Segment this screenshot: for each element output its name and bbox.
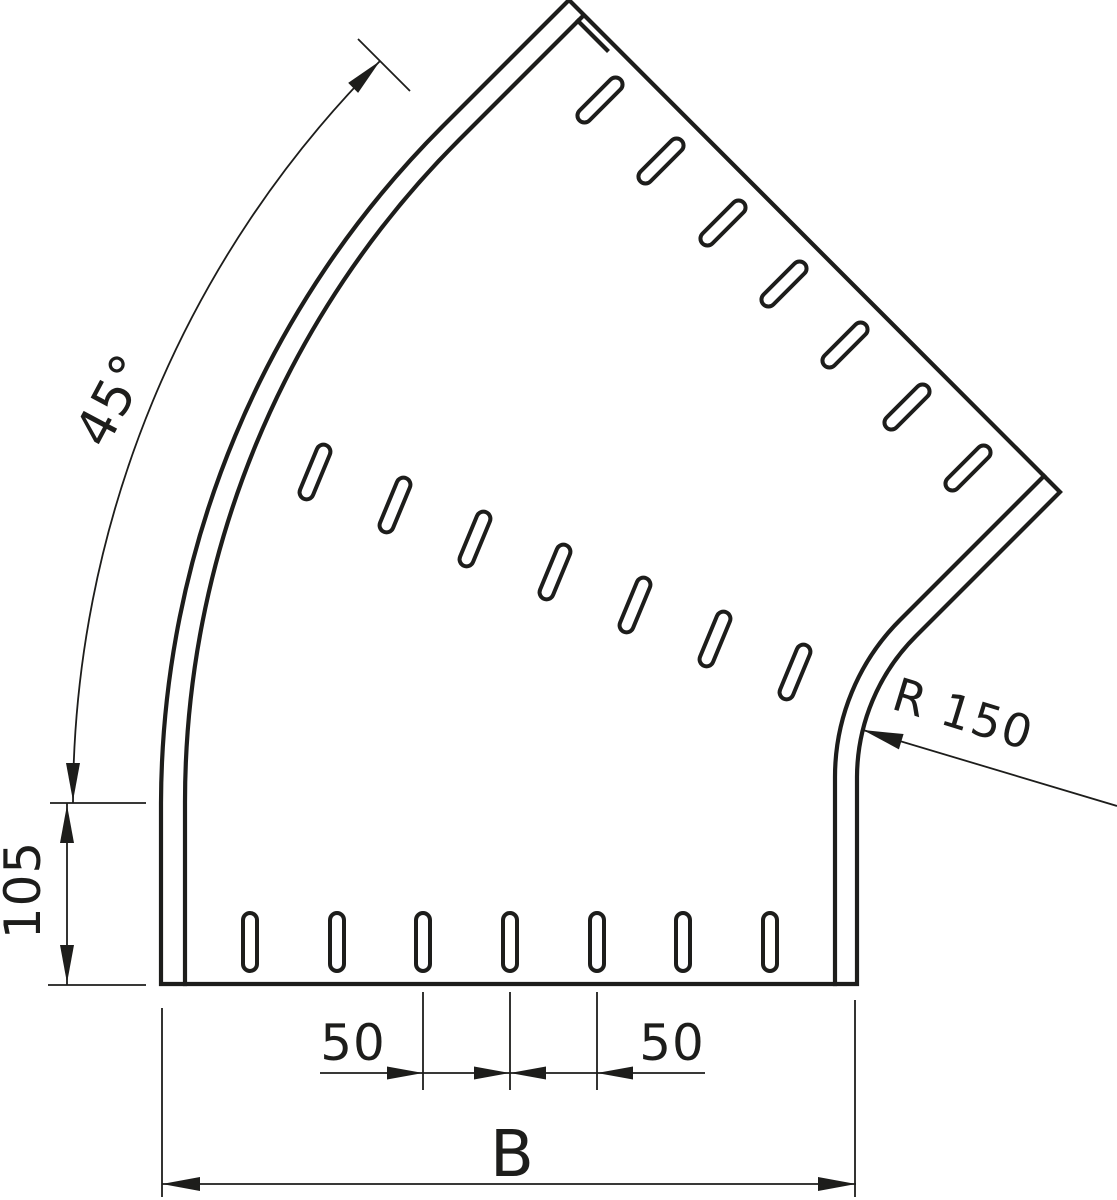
radius-dimension-label: R 150 (887, 667, 1041, 761)
arrowheads (60, 56, 904, 1191)
angle-dimension-tick (358, 39, 410, 91)
dimension-texts: 45° 105 50 50 B R 150 (0, 344, 1041, 1192)
slot (636, 136, 687, 187)
slot (537, 543, 572, 602)
slot (777, 643, 812, 702)
slot (698, 198, 749, 249)
arrowhead-b-left (162, 1177, 200, 1191)
slot (763, 913, 777, 971)
arrowhead-angle-bottom (66, 763, 80, 801)
slot (943, 443, 994, 494)
annotations: 45° 105 50 50 B R 150 (0, 56, 1041, 1192)
slot-row-middle (297, 443, 812, 702)
tray-outline (161, 0, 1060, 984)
slot (882, 382, 933, 433)
slot (377, 476, 412, 535)
line-work (48, 0, 1117, 1197)
width-dimension-label: B (490, 1118, 534, 1192)
slot (575, 75, 626, 126)
slot-row-top (575, 75, 994, 494)
slot-perforations (243, 75, 993, 971)
slot (697, 610, 732, 669)
height-dimension-label: 105 (0, 841, 52, 939)
arrowhead-50-mid-left (510, 1067, 546, 1080)
slot-row-bottom (243, 913, 777, 971)
slot (243, 913, 257, 971)
pitch-dimension-label-left: 50 (320, 1014, 386, 1072)
arrowhead-angle-top (348, 56, 385, 93)
arrowhead-radius-leader (861, 722, 904, 749)
drawing-canvas: 45° 105 50 50 B R 150 (0, 0, 1117, 1200)
slot (503, 913, 517, 971)
slot (330, 913, 344, 971)
tray-outer-boundary (161, 0, 1060, 984)
slot (457, 510, 492, 569)
slot (297, 443, 332, 502)
arrowhead-b-right (818, 1177, 856, 1191)
angle-dimension-label: 45° (64, 344, 162, 456)
dimension-lines (48, 39, 1117, 1197)
slot (676, 913, 690, 971)
arrowhead-50-left-out (387, 1067, 423, 1080)
pitch-dimension-label-right: 50 (639, 1014, 705, 1072)
arrowhead-105-top (60, 805, 74, 843)
slot (416, 913, 430, 971)
arrowhead-105-bottom (60, 945, 74, 983)
slot (590, 913, 604, 971)
arrowhead-50-mid-right (474, 1067, 510, 1080)
slot (759, 259, 810, 310)
slot (820, 320, 871, 371)
arrowhead-50-right-out (597, 1067, 633, 1080)
technical-drawing: 45° 105 50 50 B R 150 (0, 0, 1117, 1200)
left-flange-inner-line (185, 16, 583, 984)
slot (617, 576, 652, 635)
